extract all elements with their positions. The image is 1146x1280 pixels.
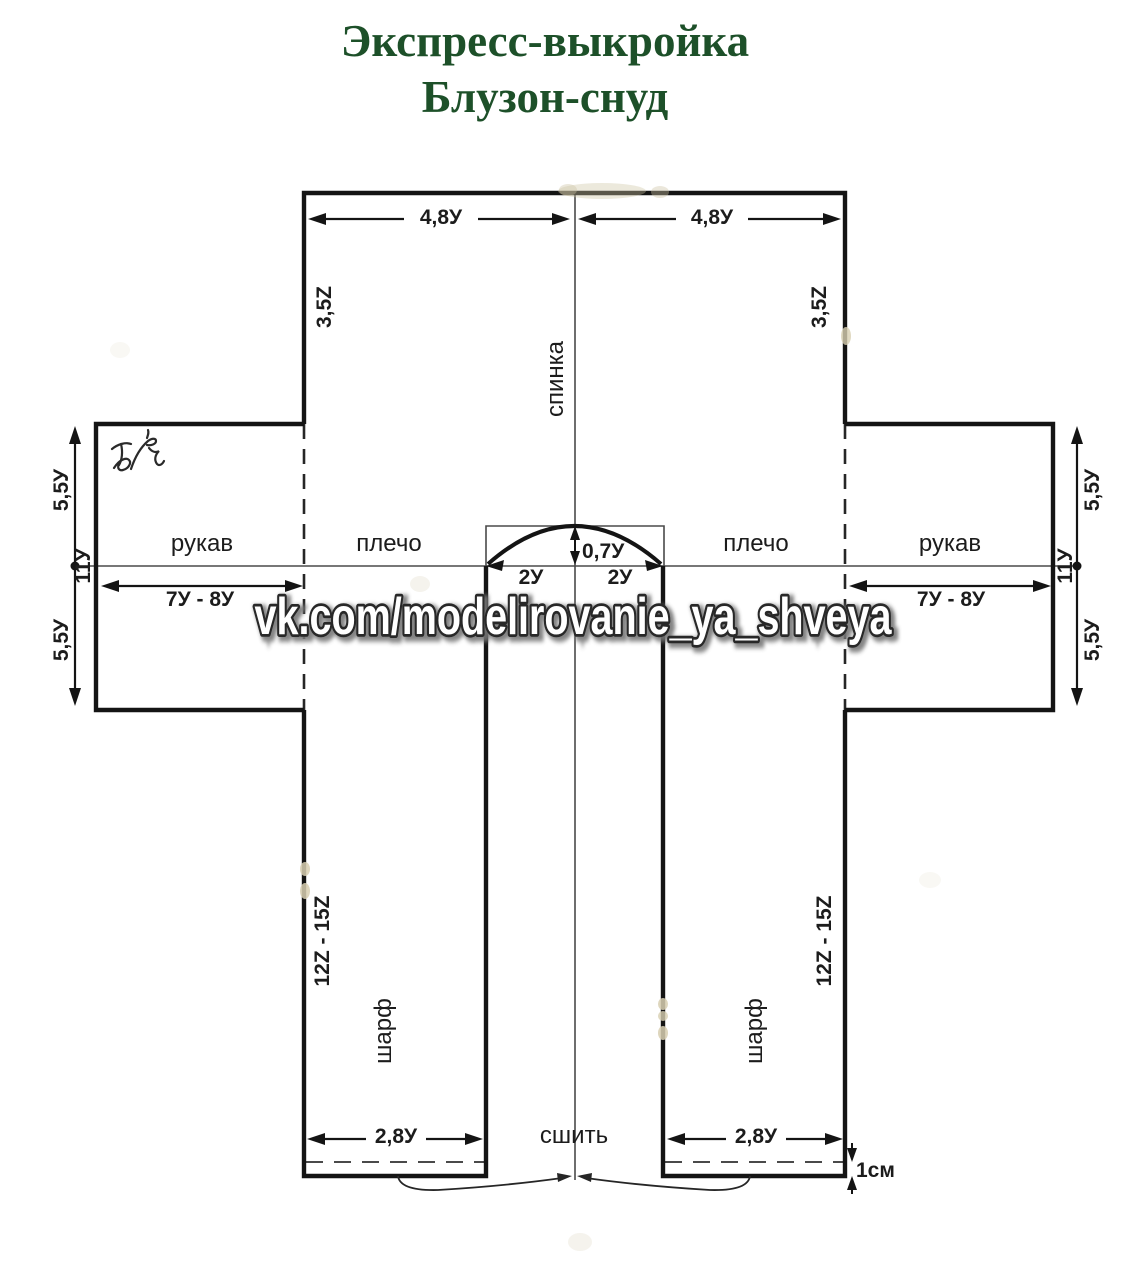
svg-text:vk.com/modelirovanie_ya_shveya: vk.com/modelirovanie_ya_shveya: [255, 587, 892, 646]
svg-text:шарф: шарф: [741, 998, 768, 1064]
svg-text:спинка: спинка: [542, 340, 569, 417]
svg-text:11У: 11У: [72, 547, 95, 583]
svg-text:5,5У: 5,5У: [50, 618, 73, 661]
svg-text:плечо: плечо: [356, 530, 421, 557]
svg-text:4,8У: 4,8У: [420, 206, 463, 229]
svg-text:2,8У: 2,8У: [735, 1125, 778, 1148]
svg-text:рукав: рукав: [919, 530, 981, 557]
svg-text:рукав: рукав: [171, 530, 233, 557]
svg-text:шарф: шарф: [370, 998, 397, 1064]
svg-text:плечо: плечо: [723, 530, 788, 557]
svg-text:12Z - 15Z: 12Z - 15Z: [311, 895, 334, 986]
svg-text:Экспресс-выкройка: Экспресс-выкройка: [341, 16, 749, 66]
svg-text:7У - 8У: 7У - 8У: [917, 588, 986, 611]
svg-text:3,5Z: 3,5Z: [808, 286, 831, 328]
svg-text:3,5Z: 3,5Z: [313, 286, 336, 328]
svg-text:2,8У: 2,8У: [375, 1125, 418, 1148]
svg-text:7У - 8У: 7У - 8У: [166, 588, 235, 611]
svg-text:2У: 2У: [519, 566, 545, 589]
svg-text:1см: 1см: [856, 1159, 895, 1182]
svg-text:4,8У: 4,8У: [691, 206, 734, 229]
svg-text:Блузон-снуд: Блузон-снуд: [422, 72, 669, 122]
svg-text:сшить: сшить: [540, 1122, 608, 1149]
svg-text:5,5У: 5,5У: [1081, 618, 1104, 661]
svg-text:0,7У: 0,7У: [582, 540, 625, 563]
svg-text:11У: 11У: [1054, 547, 1077, 583]
svg-text:5,5У: 5,5У: [1081, 468, 1104, 511]
svg-text:12Z - 15Z: 12Z - 15Z: [813, 895, 836, 986]
svg-text:2У: 2У: [608, 566, 634, 589]
svg-text:5,5У: 5,5У: [50, 468, 73, 511]
